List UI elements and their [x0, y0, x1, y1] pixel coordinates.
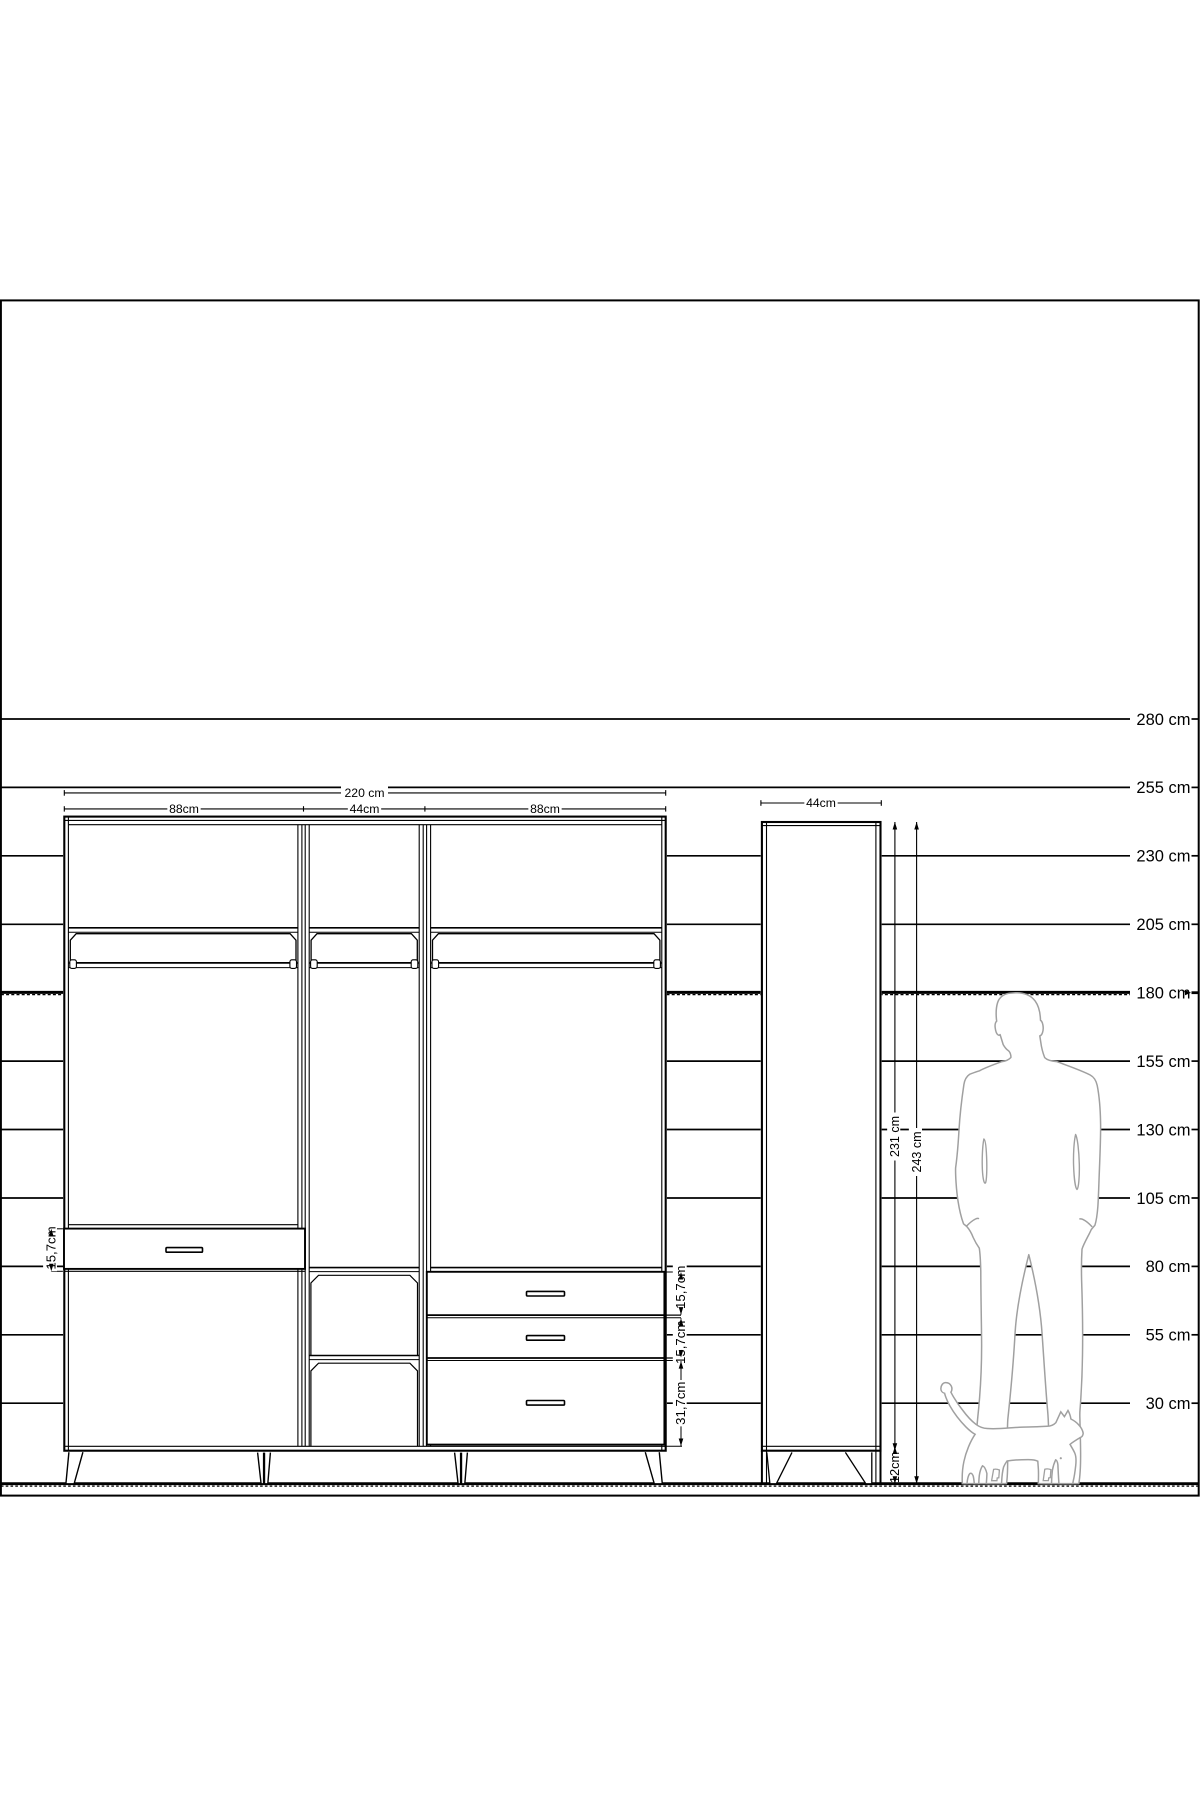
- svg-text:55 cm: 55 cm: [1146, 1327, 1191, 1345]
- svg-text:130 cm: 130 cm: [1136, 1121, 1190, 1139]
- svg-text:88cm: 88cm: [530, 802, 560, 816]
- svg-text:231 cm: 231 cm: [888, 1116, 902, 1157]
- svg-text:80 cm: 80 cm: [1146, 1258, 1191, 1276]
- svg-text:88cm: 88cm: [169, 802, 199, 816]
- svg-text:280 cm: 280 cm: [1136, 711, 1190, 729]
- svg-text:243 cm: 243 cm: [910, 1132, 924, 1173]
- svg-text:15,7cm: 15,7cm: [673, 1321, 688, 1364]
- svg-text:220 cm: 220 cm: [345, 786, 385, 800]
- svg-text:30 cm: 30 cm: [1146, 1395, 1191, 1413]
- svg-text:180 cm: 180 cm: [1136, 985, 1190, 1003]
- svg-text:44cm: 44cm: [350, 802, 380, 816]
- svg-text:255 cm: 255 cm: [1136, 779, 1190, 797]
- svg-text:15,7cm: 15,7cm: [673, 1266, 688, 1309]
- svg-text:230 cm: 230 cm: [1136, 848, 1190, 866]
- svg-text:155 cm: 155 cm: [1136, 1053, 1190, 1071]
- svg-text:31,7cm: 31,7cm: [673, 1382, 688, 1425]
- svg-text:105 cm: 105 cm: [1136, 1190, 1190, 1208]
- svg-text:205 cm: 205 cm: [1136, 916, 1190, 934]
- svg-text:44cm: 44cm: [806, 796, 836, 810]
